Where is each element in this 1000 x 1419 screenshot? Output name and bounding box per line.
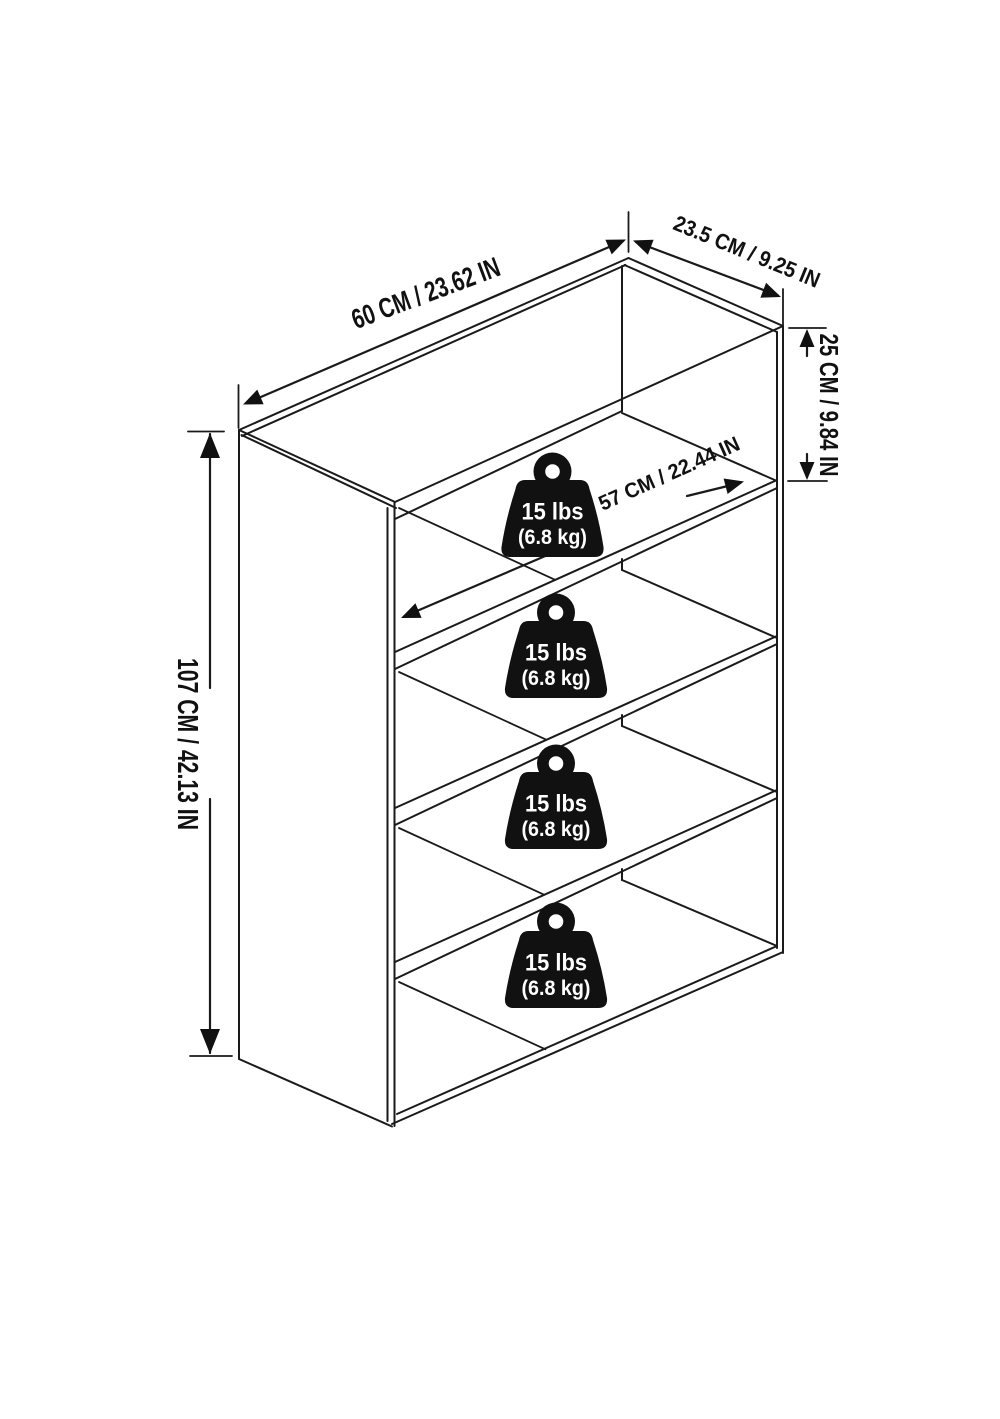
svg-text:15 lbs: 15 lbs — [522, 499, 584, 526]
svg-text:107 CM / 42.13 IN: 107 CM / 42.13 IN — [171, 658, 203, 830]
svg-text:(6.8 kg): (6.8 kg) — [522, 666, 591, 690]
svg-text:(6.8 kg): (6.8 kg) — [522, 976, 591, 1000]
svg-text:25 CM / 9.84 IN: 25 CM / 9.84 IN — [814, 334, 844, 477]
svg-text:(6.8 kg): (6.8 kg) — [522, 817, 591, 841]
svg-text:15 lbs: 15 lbs — [525, 950, 587, 977]
svg-text:(6.8 kg): (6.8 kg) — [518, 525, 587, 549]
svg-text:15 lbs: 15 lbs — [525, 640, 587, 667]
svg-text:15 lbs: 15 lbs — [525, 791, 587, 818]
